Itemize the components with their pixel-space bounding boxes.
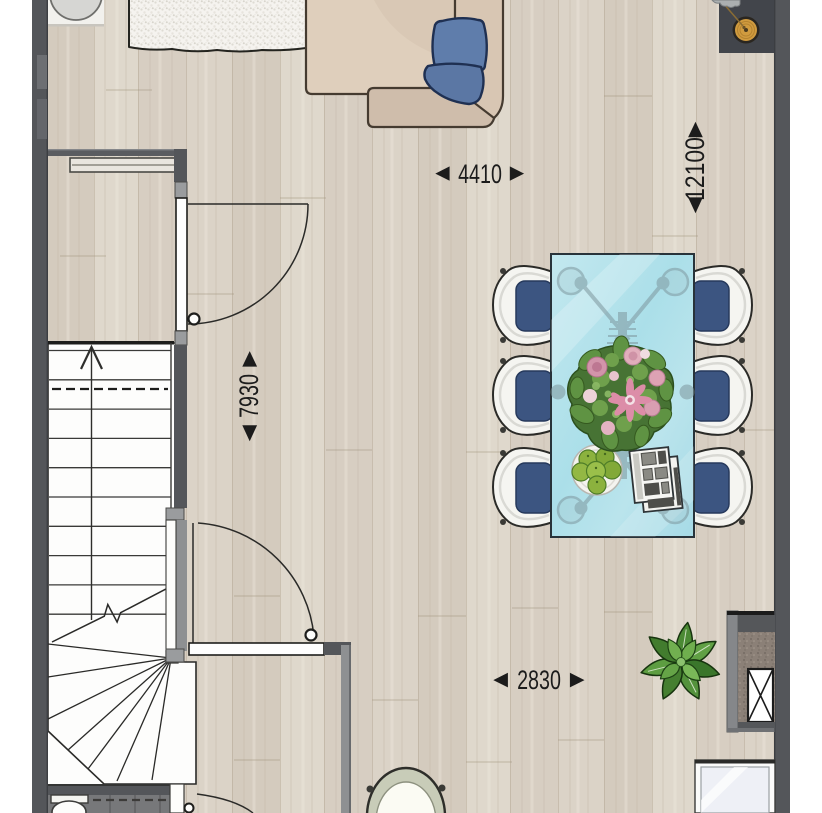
svg-text:4410: 4410 <box>458 160 502 190</box>
svg-text:12100: 12100 <box>680 137 710 201</box>
svg-text:7930: 7930 <box>235 374 265 418</box>
svg-text:2830: 2830 <box>517 666 561 696</box>
